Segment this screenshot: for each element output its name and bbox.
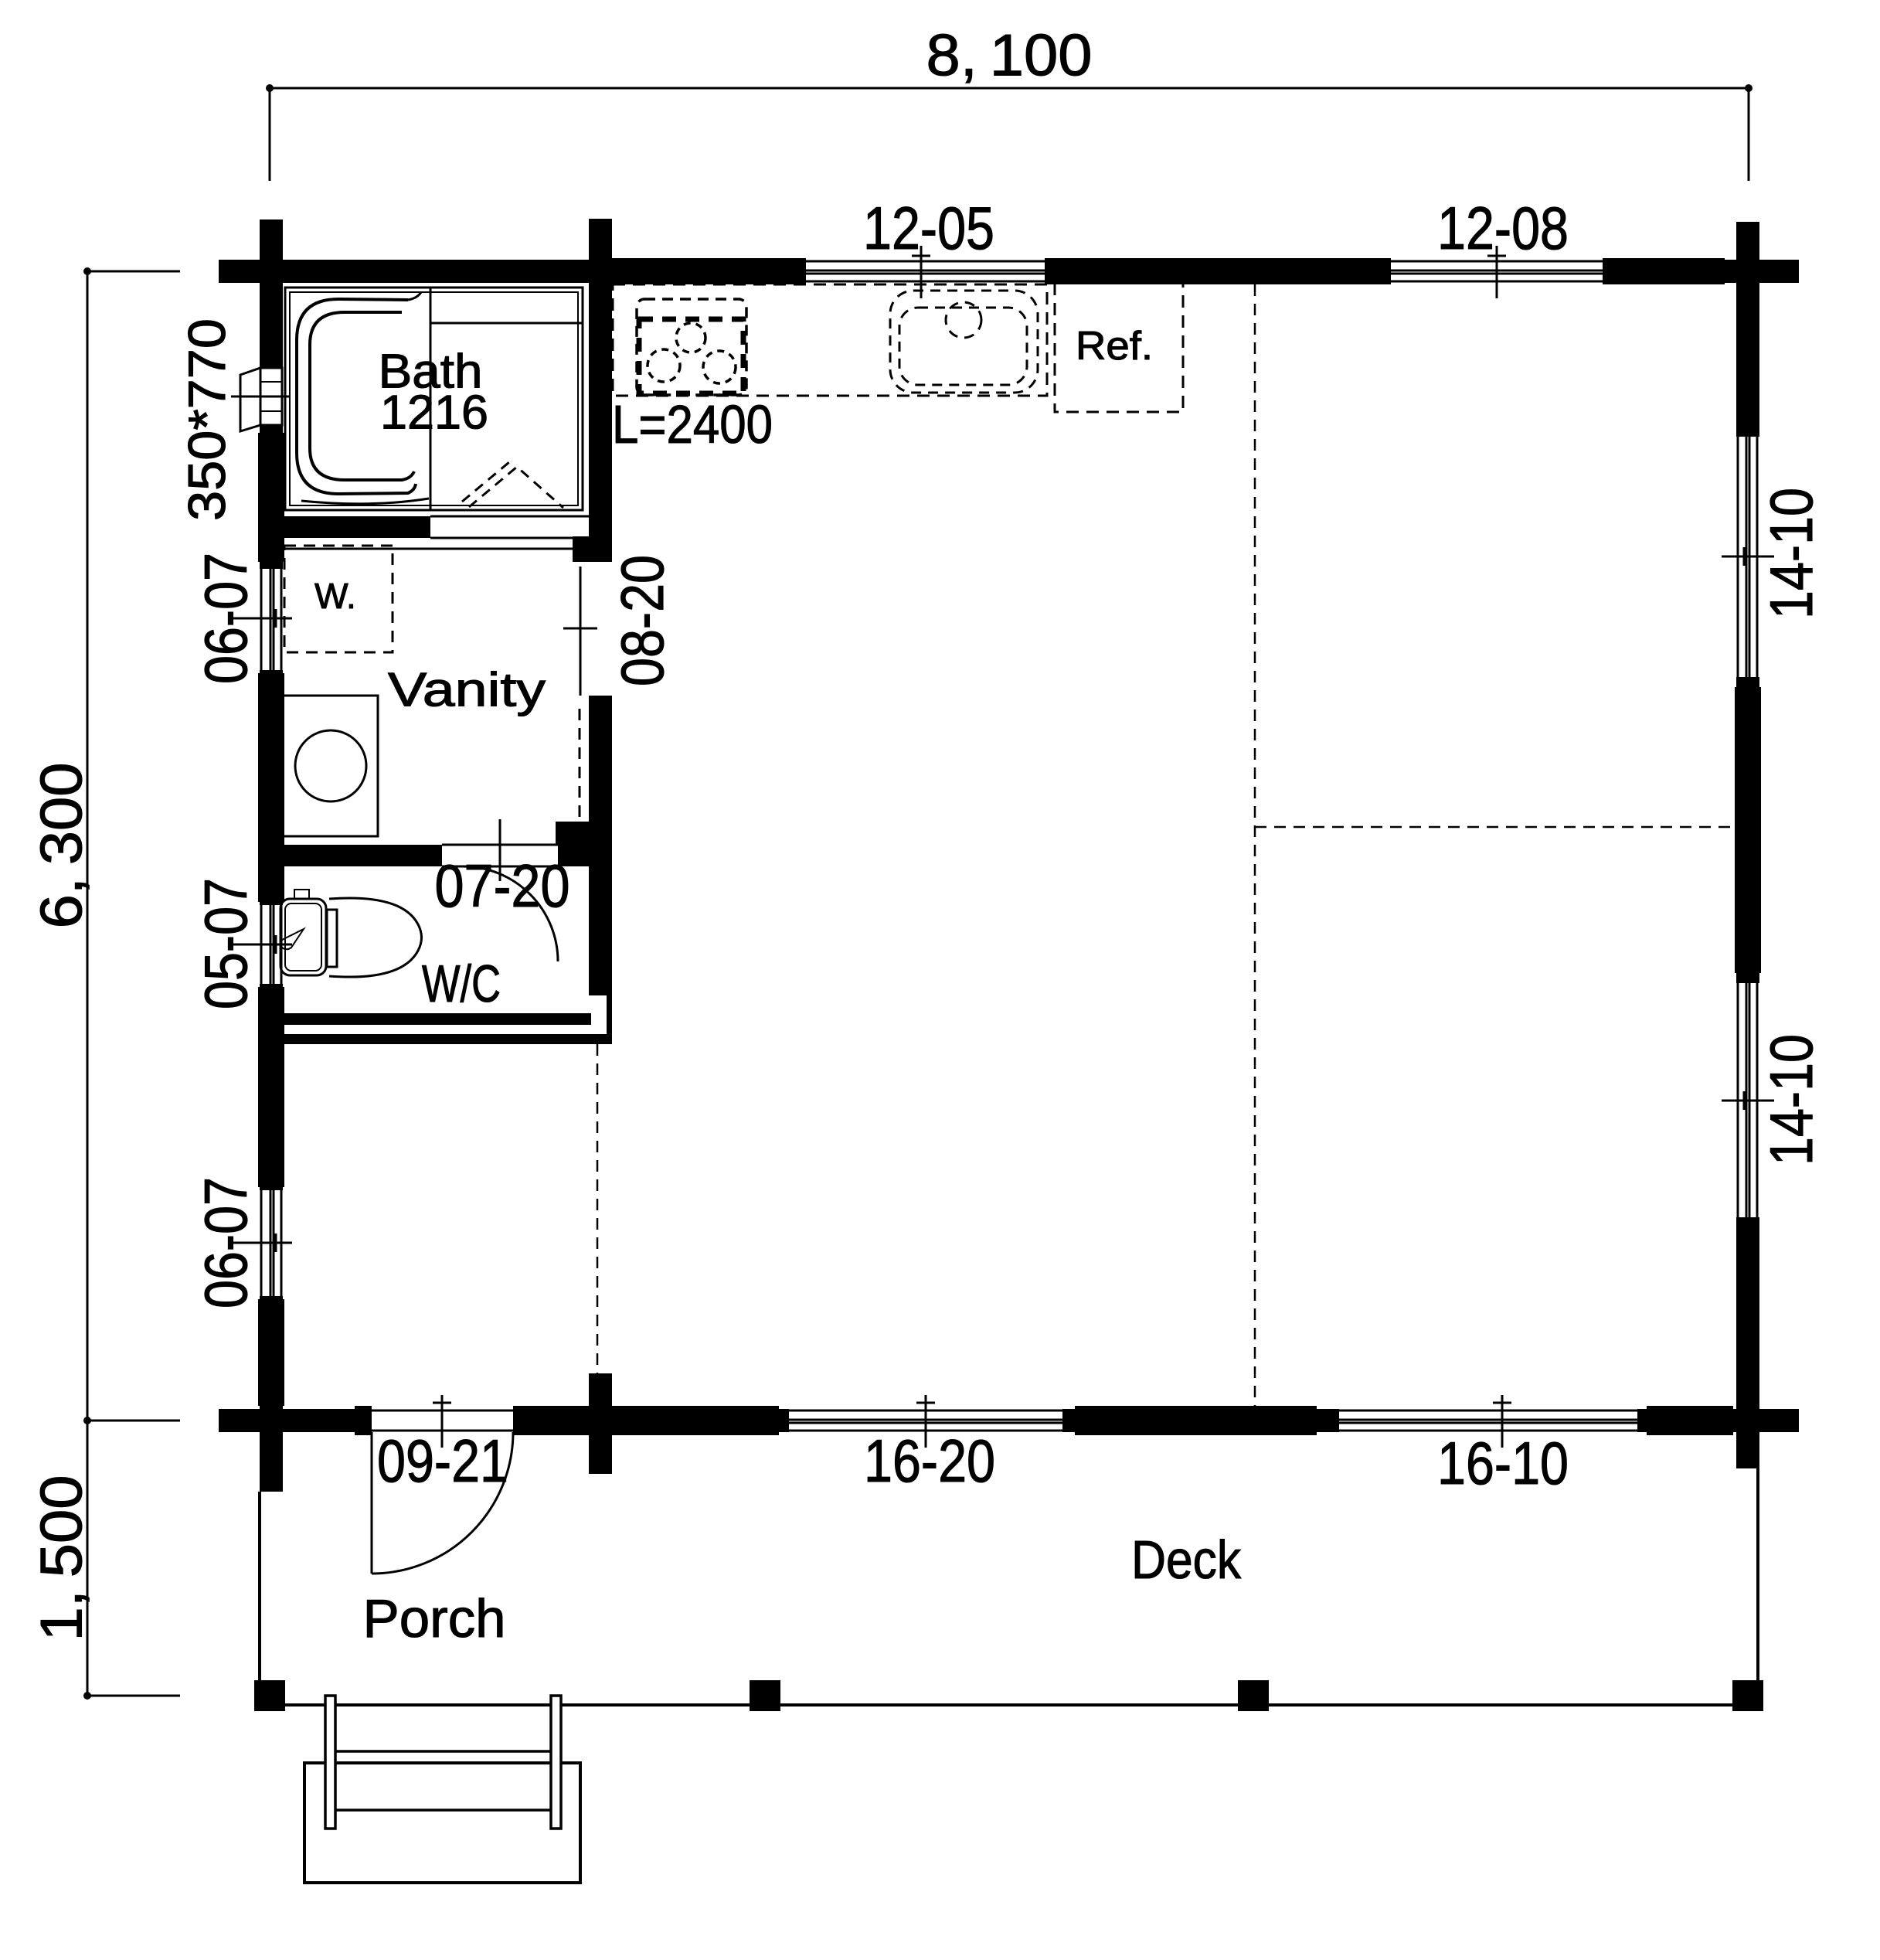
svg-text:W/C: W/C — [422, 954, 501, 1013]
svg-text:Ref.: Ref. — [1076, 324, 1153, 369]
svg-text:14-10: 14-10 — [1757, 488, 1825, 619]
svg-text:Deck: Deck — [1131, 1530, 1242, 1590]
svg-text:07-20: 07-20 — [435, 852, 570, 920]
svg-text:Porch: Porch — [363, 1588, 506, 1649]
svg-text:L=2400: L=2400 — [612, 394, 773, 454]
svg-text:6, 300: 6, 300 — [29, 763, 95, 929]
svg-text:1216: 1216 — [380, 386, 488, 440]
svg-text:W.: W. — [314, 576, 356, 616]
svg-text:09-21: 09-21 — [377, 1427, 508, 1495]
svg-text:16-20: 16-20 — [864, 1427, 995, 1495]
svg-text:350*770: 350*770 — [178, 318, 236, 521]
svg-text:06-07: 06-07 — [192, 553, 260, 684]
svg-text:Vanity: Vanity — [388, 664, 546, 717]
svg-text:1, 500: 1, 500 — [29, 1475, 95, 1642]
svg-text:8, 100: 8, 100 — [926, 23, 1093, 89]
svg-text:06-07: 06-07 — [192, 1177, 260, 1308]
svg-text:12-05: 12-05 — [863, 194, 994, 262]
svg-text:05-07: 05-07 — [192, 878, 260, 1009]
svg-text:12-08: 12-08 — [1437, 194, 1569, 262]
svg-text:14-10: 14-10 — [1757, 1034, 1825, 1165]
svg-text:08-20: 08-20 — [608, 555, 676, 686]
svg-text:16-10: 16-10 — [1437, 1429, 1569, 1497]
